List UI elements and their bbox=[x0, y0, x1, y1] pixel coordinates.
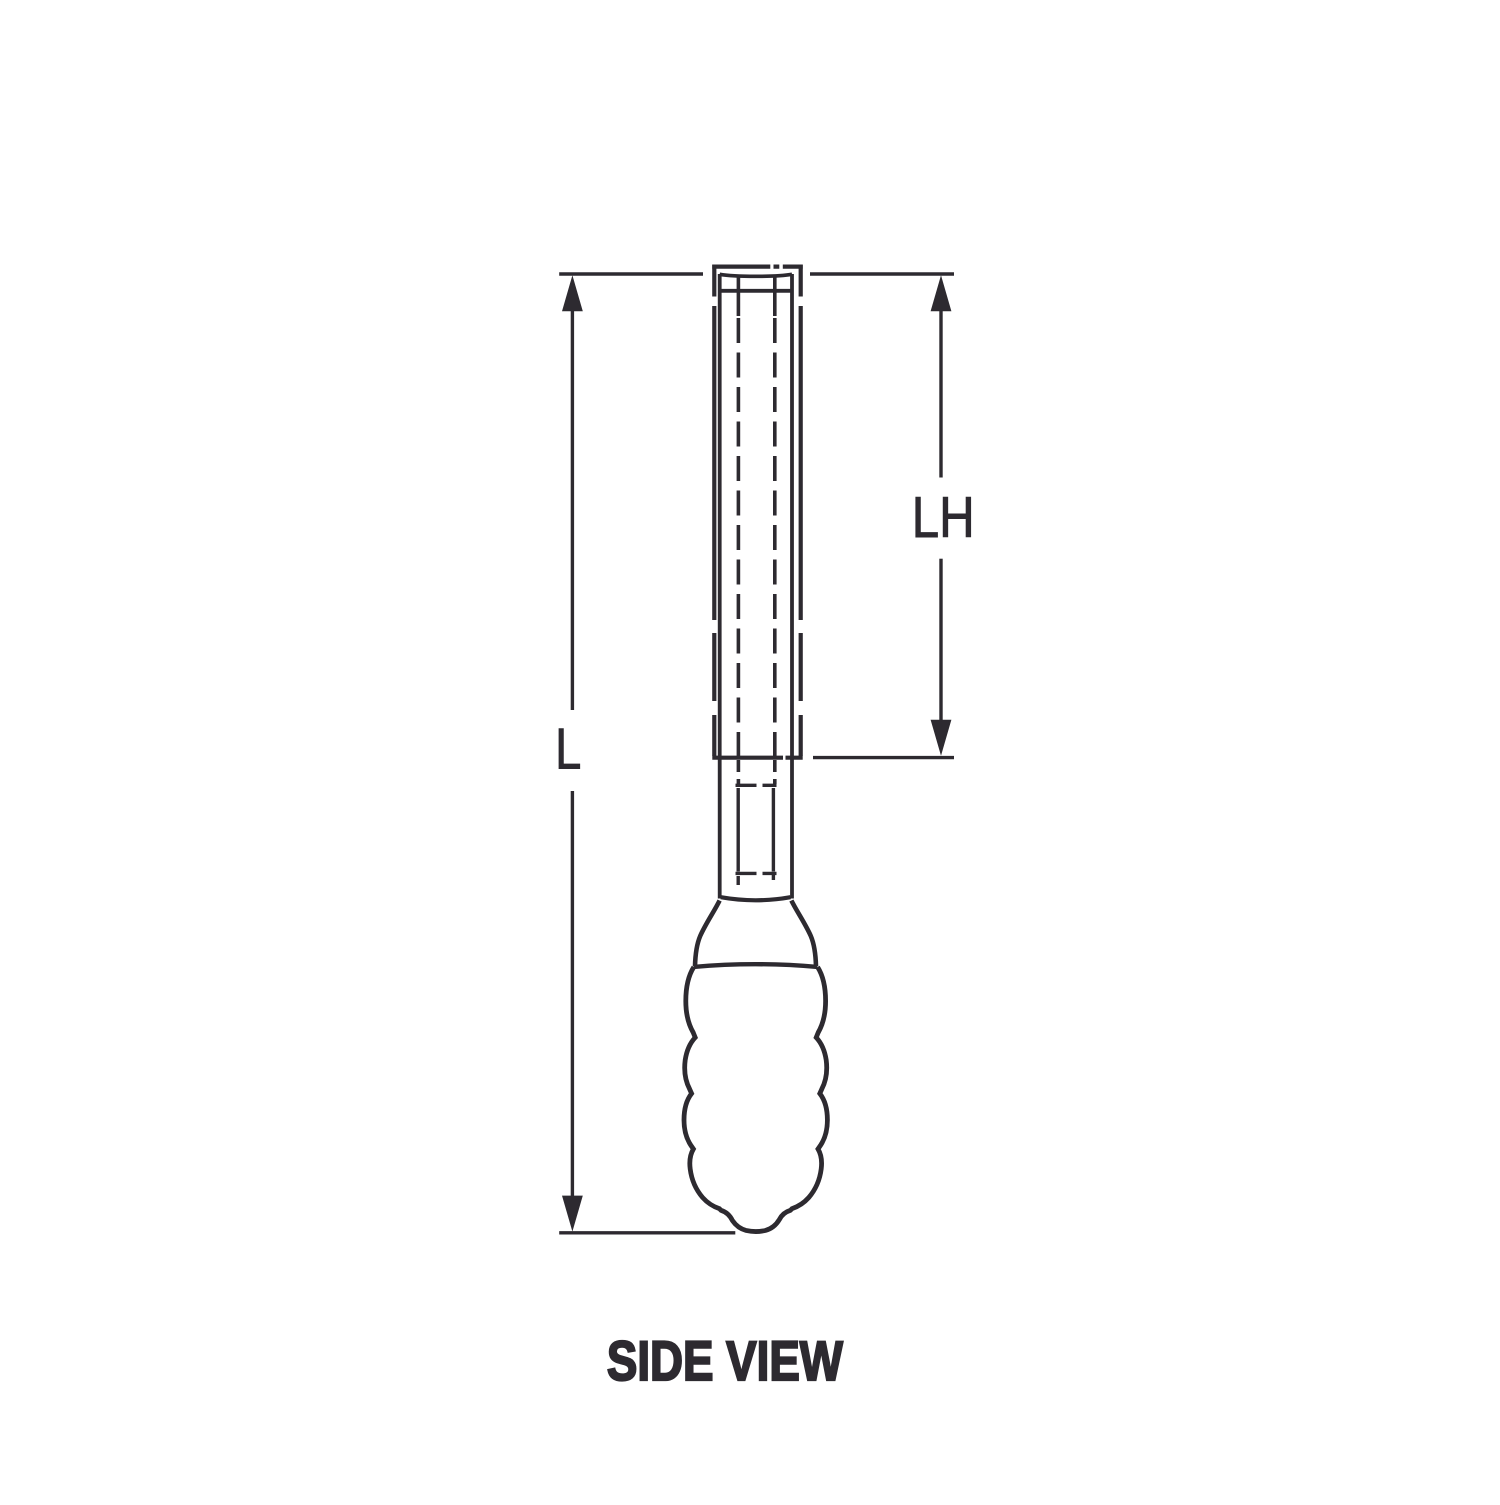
svg-text:LH: LH bbox=[912, 486, 975, 550]
svg-text:L: L bbox=[555, 717, 581, 781]
svg-text:SIDE VIEW: SIDE VIEW bbox=[607, 1329, 843, 1392]
